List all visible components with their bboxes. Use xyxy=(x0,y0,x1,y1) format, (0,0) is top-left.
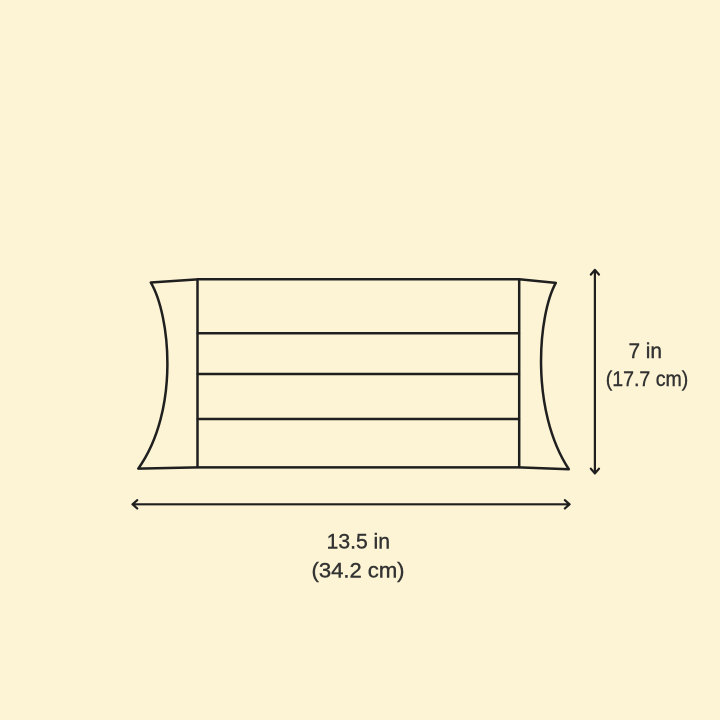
svg-text:(34.2 cm): (34.2 cm) xyxy=(312,560,405,583)
svg-text:7 in: 7 in xyxy=(628,340,662,363)
svg-text:13.5 in: 13.5 in xyxy=(327,531,390,554)
svg-text:(17.7 cm): (17.7 cm) xyxy=(606,368,689,391)
